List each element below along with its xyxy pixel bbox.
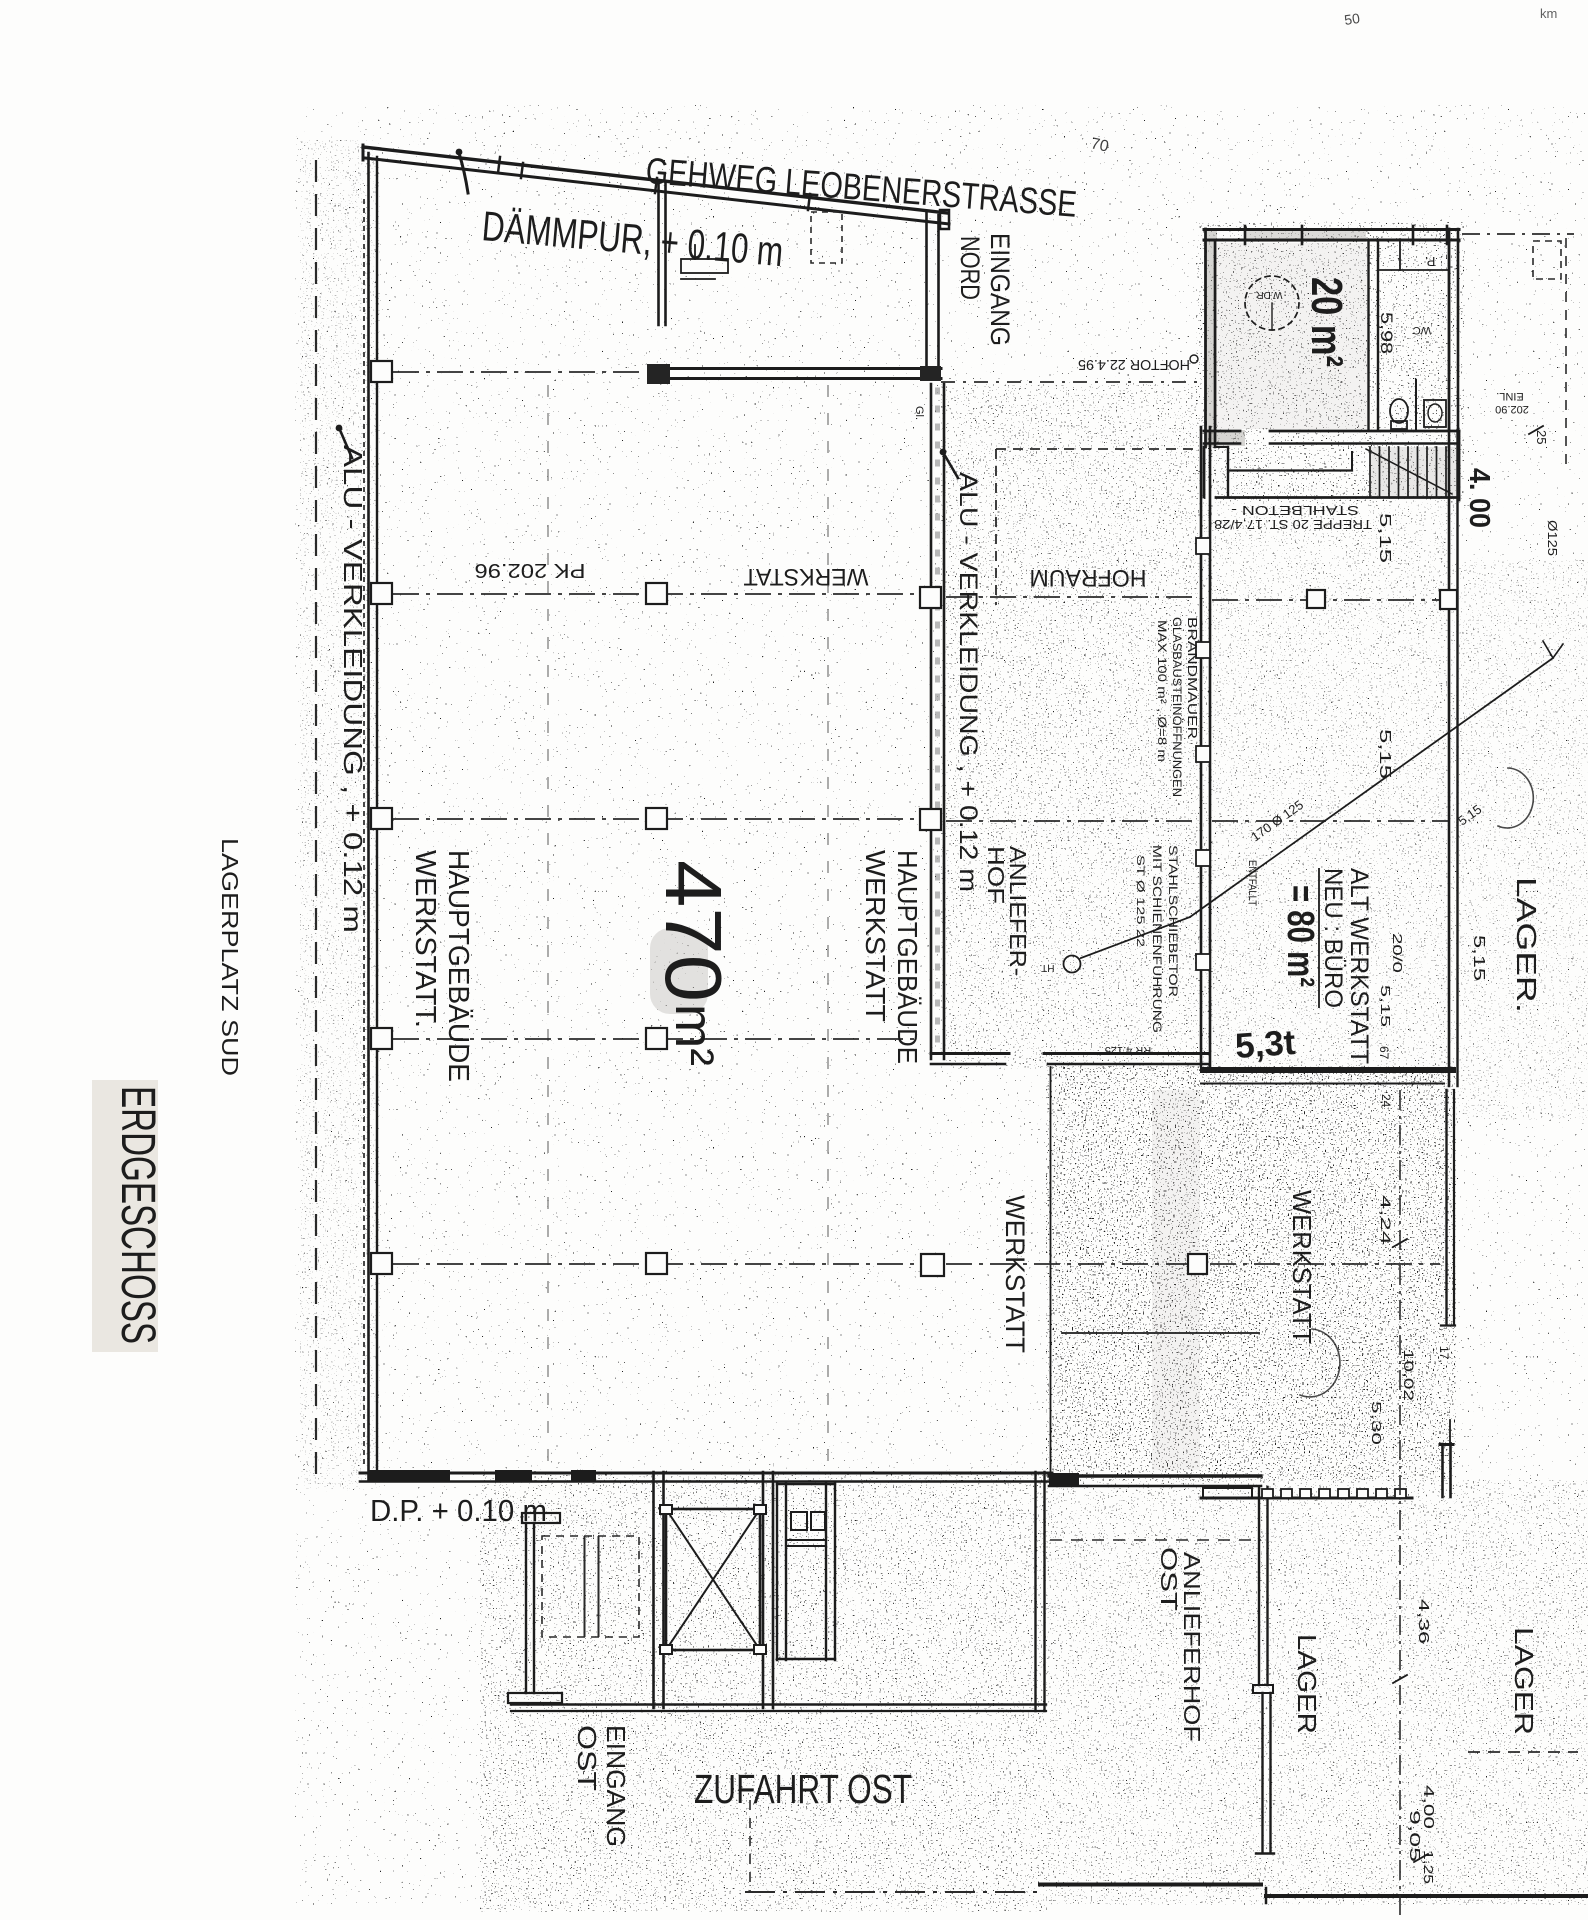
svg-text:5,15: 5,15 xyxy=(1376,513,1393,563)
svg-text:MAX 100 m² , Ø=8 m: MAX 100 m² , Ø=8 m xyxy=(1155,620,1169,762)
svg-text:GLASBAUSTEINÖFFNUNGEN: GLASBAUSTEINÖFFNUNGEN xyxy=(1170,617,1184,797)
svg-text:LAGER: LAGER xyxy=(1509,1627,1539,1735)
svg-text:TREPPE 20 ST. 17,4/28: TREPPE 20 ST. 17,4/28 xyxy=(1214,517,1372,532)
svg-text:OST: OST xyxy=(1156,1547,1182,1611)
svg-text:WERKSTATT: WERKSTATT xyxy=(860,850,891,1022)
svg-text:HOFTOR 22.4.95: HOFTOR 22.4.95 xyxy=(1078,356,1190,373)
svg-text:NORD: NORD xyxy=(955,236,985,300)
svg-text:PK 202.96: PK 202.96 xyxy=(475,559,586,581)
svg-text:LAGER: LAGER xyxy=(1292,1634,1322,1734)
svg-text:LAGERPLATZ SUD: LAGERPLATZ SUD xyxy=(217,838,243,1076)
svg-text:9,05: 9,05 xyxy=(1406,1810,1423,1862)
svg-text:5,30: 5,30 xyxy=(1369,1401,1384,1445)
svg-text:20/0: 20/0 xyxy=(1390,933,1405,973)
svg-text:17,: 17, xyxy=(1437,1346,1451,1363)
svg-text:W.DR.: W.DR. xyxy=(1254,289,1283,300)
svg-text:km: km xyxy=(1540,6,1557,21)
svg-text:HOFRAUM: HOFRAUM xyxy=(1030,564,1147,591)
svg-text:RR 4.125: RR 4.125 xyxy=(1105,1044,1151,1056)
svg-text:ALT WERKSTATT: ALT WERKSTATT xyxy=(1345,868,1373,1064)
svg-text:HOF: HOF xyxy=(983,846,1009,904)
svg-text:20 m²: 20 m² xyxy=(1302,277,1351,367)
svg-text:10,02: 10,02 xyxy=(1401,1349,1417,1401)
svg-text:EINGANG: EINGANG xyxy=(601,1725,631,1847)
svg-text:OST: OST xyxy=(572,1725,602,1791)
svg-text:HT.: HT. xyxy=(1040,962,1055,973)
svg-text:470: 470 xyxy=(649,860,738,1002)
svg-text:m²: m² xyxy=(664,1004,724,1066)
svg-text:BRANDMAUER: BRANDMAUER xyxy=(1185,617,1200,739)
svg-text:P.: P. xyxy=(1425,254,1436,269)
svg-text:= 80 m²: = 80 m² xyxy=(1279,885,1321,987)
svg-text:ALU - VERKLEIDUNG , + 0.12 m: ALU - VERKLEIDUNG , + 0.12 m xyxy=(338,445,368,933)
svg-text:70: 70 xyxy=(1089,135,1110,155)
svg-text:NEU : BÜRO: NEU : BÜRO xyxy=(1319,868,1347,1008)
svg-text:67: 67 xyxy=(1377,1046,1391,1060)
svg-text:Ø125: Ø125 xyxy=(1545,520,1560,556)
svg-text:WERKSTAT: WERKSTAT xyxy=(743,563,868,590)
svg-text:ST Ø 125 22: ST Ø 125 22 xyxy=(1134,855,1146,947)
svg-text:5,15: 5,15 xyxy=(1378,985,1393,1027)
svg-text:Gl.: Gl. xyxy=(913,406,925,420)
svg-text:202.90: 202.90 xyxy=(1495,403,1529,415)
svg-text:5,15: 5,15 xyxy=(1376,729,1393,779)
svg-text:4. 00: 4. 00 xyxy=(1463,468,1495,528)
svg-text:WERKSTATT: WERKSTATT xyxy=(1287,1190,1317,1344)
svg-text:ALU - VERKLEIDUNG , + 0.12 m: ALU - VERKLEIDUNG , + 0.12 m xyxy=(954,472,982,892)
svg-text:5,15: 5,15 xyxy=(1470,935,1487,981)
svg-text:STAHLBETON -: STAHLBETON - xyxy=(1231,503,1359,518)
svg-text:WC: WC xyxy=(1413,324,1431,336)
svg-text:HAUPTGEBÄUDE: HAUPTGEBÄUDE xyxy=(892,850,923,1064)
svg-text:5,3t: 5,3t xyxy=(1234,1023,1297,1066)
svg-text:EINL.: EINL. xyxy=(1496,390,1524,402)
svg-text:MIT SCHIENENFÜHRUNG: MIT SCHIENENFÜHRUNG xyxy=(1150,845,1164,1033)
svg-text:ERDGESCHOSS: ERDGESCHOSS xyxy=(111,1086,164,1344)
svg-text:ENTFALLT: ENTFALLT xyxy=(1246,860,1258,906)
svg-text:D.P. + 0.10 m: D.P. + 0.10 m xyxy=(370,1493,547,1528)
svg-text:4,36: 4,36 xyxy=(1415,1599,1432,1644)
svg-text:LAGER.: LAGER. xyxy=(1511,877,1542,1013)
svg-text:ZUFAHRT OST: ZUFAHRT OST xyxy=(694,1766,912,1812)
svg-text:50: 50 xyxy=(1343,10,1361,28)
svg-text:5,98: 5,98 xyxy=(1377,312,1396,354)
svg-text:WERKSTATT: WERKSTATT xyxy=(1000,1195,1030,1353)
svg-text:24: 24 xyxy=(1379,1094,1393,1108)
svg-text:1,25: 1,25 xyxy=(1421,1850,1436,1884)
svg-text:STAHLSCHIEBETOR: STAHLSCHIEBETOR xyxy=(1166,845,1180,997)
svg-text:WERKSTATT.: WERKSTATT. xyxy=(409,850,441,1028)
svg-text:25: 25 xyxy=(1534,430,1549,444)
svg-text:EINGANG: EINGANG xyxy=(985,233,1015,346)
svg-text:4,24: 4,24 xyxy=(1378,1195,1394,1245)
svg-text:HAUPTGEBÄUDE: HAUPTGEBÄUDE xyxy=(442,850,474,1082)
